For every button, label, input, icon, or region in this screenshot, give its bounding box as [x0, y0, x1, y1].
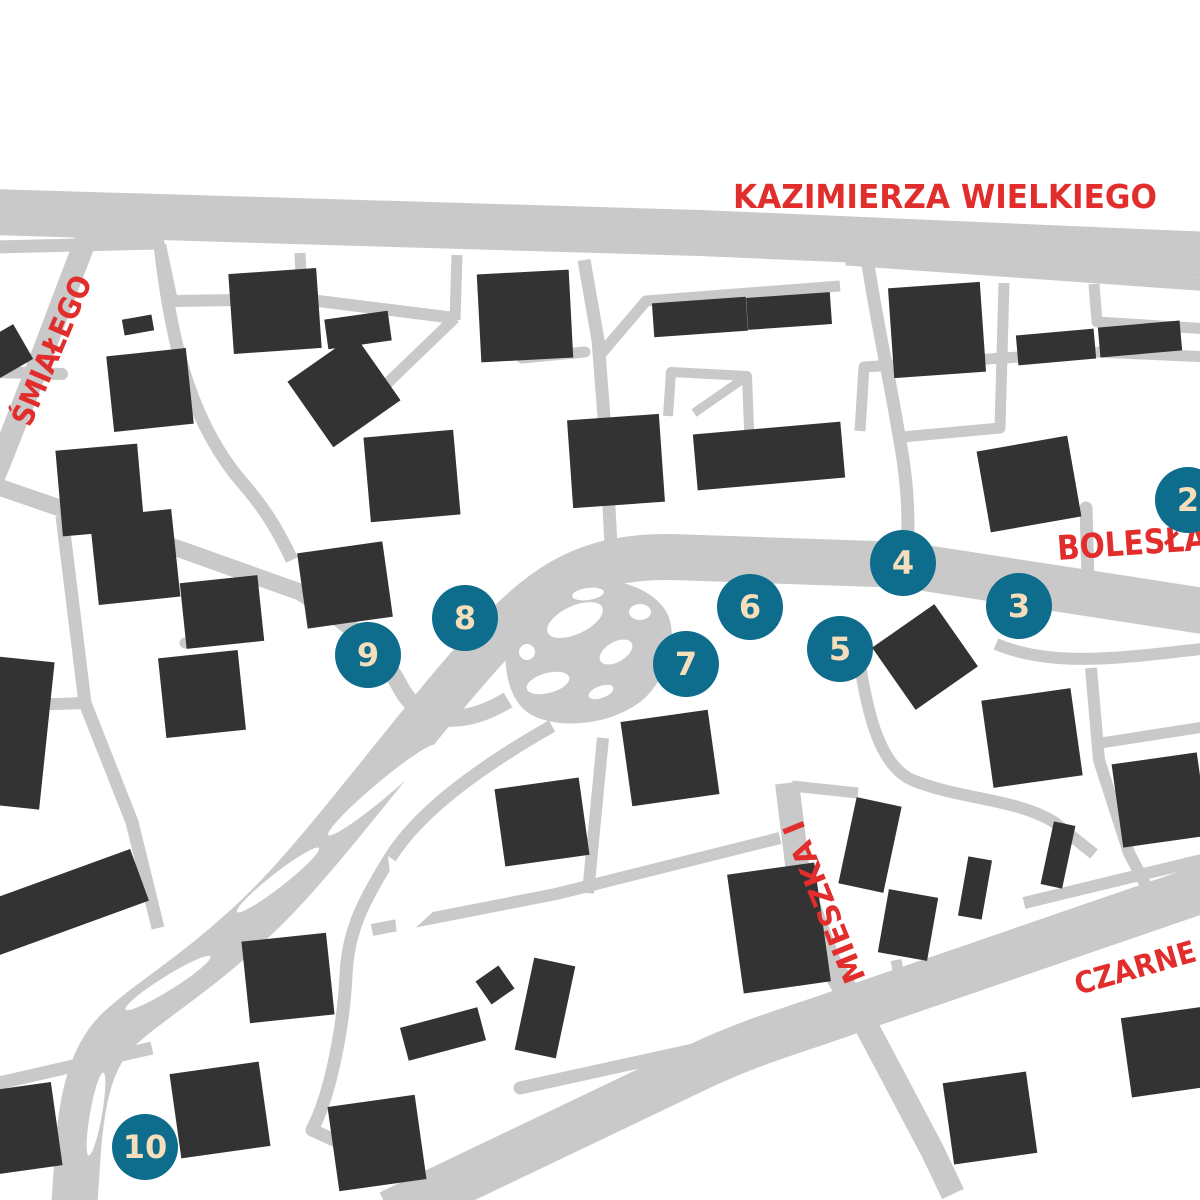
building-footprint [363, 430, 460, 523]
poi-marker-8[interactable]: 8 [432, 585, 498, 651]
building-footprint [693, 422, 845, 491]
poi-marker-number: 9 [357, 636, 379, 674]
building-footprint [241, 933, 334, 1023]
poi-marker-number: 2 [1177, 481, 1199, 519]
traffic-island [319, 679, 357, 712]
poi-marker-7[interactable]: 7 [653, 631, 719, 697]
building-footprint [180, 575, 264, 649]
poi-marker-5[interactable]: 5 [807, 616, 873, 682]
building-footprint [872, 604, 978, 710]
poi-marker-10[interactable]: 10 [112, 1114, 178, 1180]
building-footprint [1016, 329, 1096, 366]
poi-marker-number: 7 [675, 645, 697, 683]
road-segment [902, 428, 1000, 437]
road-segment [588, 738, 603, 893]
building-footprint [400, 1007, 486, 1061]
building-footprint [888, 282, 986, 378]
building-footprint [515, 958, 576, 1059]
building-footprint [0, 656, 55, 809]
building-footprint [106, 348, 194, 432]
building-footprint [981, 688, 1082, 788]
road-segment [455, 255, 457, 320]
poi-marker-4[interactable]: 4 [870, 530, 936, 596]
poi-marker-number: 3 [1008, 587, 1030, 625]
building-footprint [494, 777, 589, 866]
building-footprint [838, 797, 901, 893]
building-footprint [567, 414, 665, 508]
road-segment [584, 260, 612, 565]
building-footprint [621, 710, 720, 806]
road-segment [1101, 726, 1200, 743]
road-segment [792, 786, 858, 793]
traffic-island [388, 856, 448, 944]
map-canvas: KAZIMIERZA WIELKIEGOŚMIAŁEGOBOLESŁAMIESZ… [0, 0, 1200, 1200]
building-footprint [287, 335, 400, 448]
building-footprint [746, 292, 832, 330]
poi-marker-9[interactable]: 9 [335, 622, 401, 688]
building-footprint [977, 436, 1082, 533]
building-footprint [1121, 1007, 1200, 1098]
road-segment [694, 379, 743, 413]
poi-marker-number: 4 [892, 544, 914, 582]
poi-marker-6[interactable]: 6 [717, 574, 783, 640]
city-map: KAZIMIERZA WIELKIEGOŚMIAŁEGOBOLESŁAMIESZ… [0, 0, 1200, 1200]
road-segment [1094, 284, 1200, 329]
traffic-island [629, 604, 651, 620]
building-footprint [122, 315, 154, 336]
building-footprint [170, 1062, 271, 1159]
building-footprint [958, 856, 992, 919]
road-segment [996, 644, 1200, 659]
building-footprint [476, 966, 515, 1005]
poi-marker-number: 8 [454, 599, 476, 637]
poi-marker-number: 6 [739, 588, 761, 626]
building-footprint [1041, 821, 1076, 888]
building-footprint [477, 270, 573, 363]
building-footprint [943, 1072, 1038, 1165]
street-label-kazimierza-wielkiego: KAZIMIERZA WIELKIEGO [733, 177, 1157, 216]
building-footprint [324, 311, 392, 350]
poi-marker-number: 10 [123, 1128, 168, 1166]
building-footprint [652, 297, 748, 337]
traffic-island [519, 644, 535, 660]
building-footprint [158, 650, 246, 738]
building-footprint [1112, 752, 1200, 847]
building-footprint [878, 889, 938, 961]
poi-marker-number: 5 [829, 630, 851, 668]
road-segment [0, 212, 1200, 255]
poi-marker-3[interactable]: 3 [986, 573, 1052, 639]
building-footprint [90, 509, 181, 605]
building-footprint [297, 541, 393, 628]
building-footprint [0, 1082, 63, 1174]
building-footprint [228, 268, 321, 354]
building-footprint [0, 849, 149, 957]
building-footprint [328, 1095, 427, 1191]
road-segment [0, 243, 158, 247]
